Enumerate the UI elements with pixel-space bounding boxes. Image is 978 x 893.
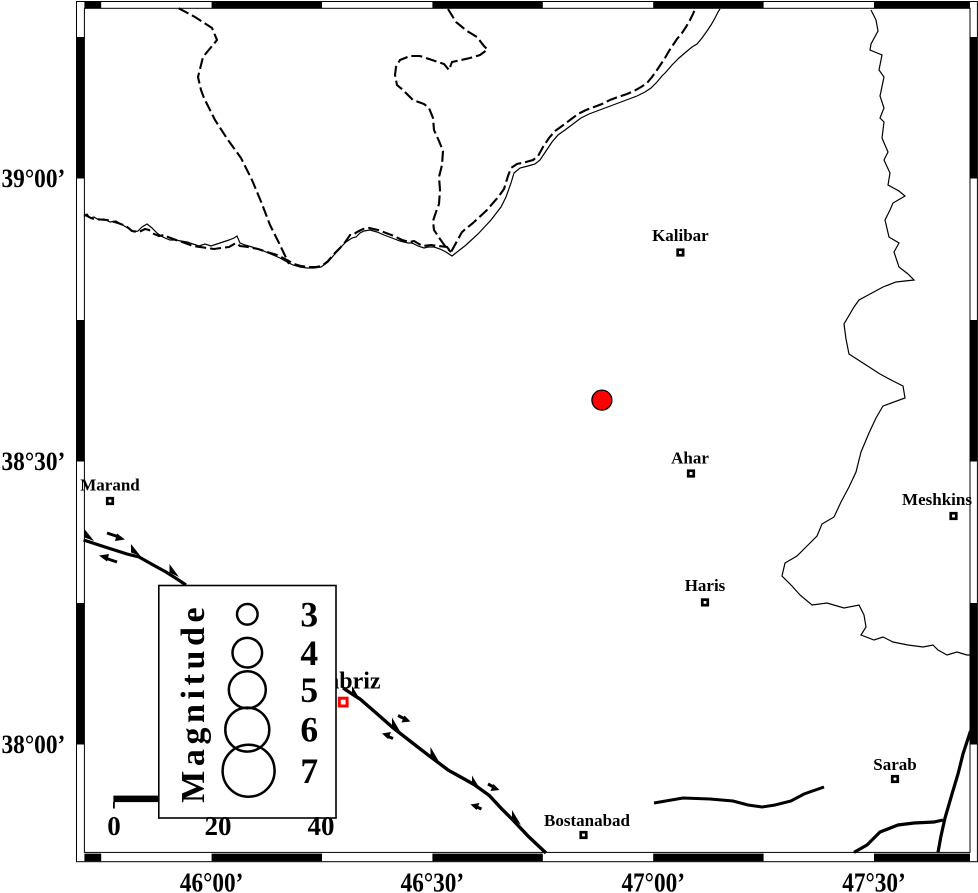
svg-text:20: 20 (205, 811, 232, 841)
svg-text:39°00’: 39°00’ (2, 164, 66, 193)
svg-text:47°30’: 47°30’ (842, 866, 906, 893)
svg-text:Magnitude: Magnitude (175, 603, 212, 803)
svg-text:46°30’: 46°30’ (401, 866, 465, 893)
svg-text:38°00’: 38°00’ (2, 730, 66, 759)
svg-text:3: 3 (300, 595, 318, 635)
svg-text:0: 0 (107, 811, 121, 841)
svg-text:5: 5 (300, 670, 318, 710)
svg-text:Bostanabad: Bostanabad (544, 811, 631, 830)
svg-text:7: 7 (300, 751, 318, 791)
svg-text:40: 40 (308, 811, 335, 841)
svg-text:Kalibar: Kalibar (652, 226, 709, 245)
svg-text:38°30’: 38°30’ (2, 447, 66, 476)
svg-text:Haris: Haris (685, 576, 726, 595)
svg-text:4: 4 (300, 633, 318, 673)
svg-text:46°00’: 46°00’ (180, 866, 244, 893)
svg-text:47°00’: 47°00’ (621, 866, 685, 893)
svg-text:6: 6 (300, 710, 318, 750)
svg-text:Meshkins: Meshkins (902, 490, 972, 509)
svg-text:Sarab: Sarab (873, 755, 916, 774)
svg-text:Ahar: Ahar (671, 449, 709, 468)
svg-text:Marand: Marand (80, 475, 140, 494)
